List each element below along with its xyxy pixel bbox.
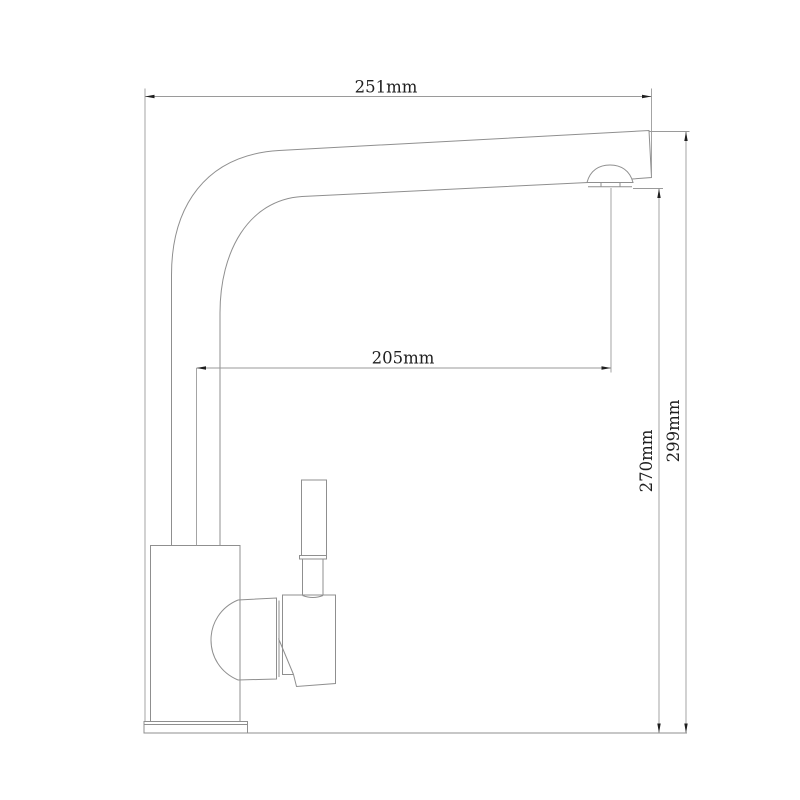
- handle-flange: [300, 556, 327, 560]
- handle-hub: [279, 595, 336, 687]
- faucet-technical-drawing: 251mm 205mm 270mm: [0, 0, 800, 800]
- dim-251-label: 251mm: [355, 78, 418, 97]
- handle-stem: [303, 559, 324, 595]
- dim-270-arrow-top: [657, 189, 660, 199]
- valve-housing-bulge: [211, 600, 238, 680]
- faucet-body: [151, 546, 241, 722]
- spout-outer-contour: [172, 131, 652, 546]
- dim-251-arrow-right: [642, 95, 652, 98]
- aerator-dome: [587, 165, 633, 183]
- handle-grip: [302, 480, 327, 556]
- dimension-top-width: 251mm: [145, 78, 652, 722]
- aerator-outlet: [588, 183, 632, 187]
- base-plate: [144, 722, 248, 734]
- dimension-spout-reach: 205mm: [197, 188, 612, 546]
- dim-205-label: 205mm: [372, 349, 435, 368]
- dim-251-arrow-left: [145, 95, 155, 98]
- dim-205-arrow-right: [602, 366, 612, 369]
- dim-299-label: 299mm: [664, 399, 683, 462]
- dim-205-arrow-left: [197, 366, 207, 369]
- valve-housing-cylinder: [238, 598, 279, 680]
- handle-stem-junction: [303, 596, 324, 598]
- dim-270-label: 270mm: [637, 429, 656, 492]
- dim-299-arrow-bottom: [684, 724, 687, 734]
- dimension-outlet-height: 270mm: [633, 189, 663, 734]
- dim-270-arrow-bottom: [657, 724, 660, 734]
- dim-299-arrow-top: [684, 132, 687, 142]
- dimensions: 251mm 205mm 270mm: [145, 78, 690, 734]
- drawing-sheet: 251mm 205mm 270mm: [0, 0, 800, 800]
- faucet-outline: [144, 131, 687, 734]
